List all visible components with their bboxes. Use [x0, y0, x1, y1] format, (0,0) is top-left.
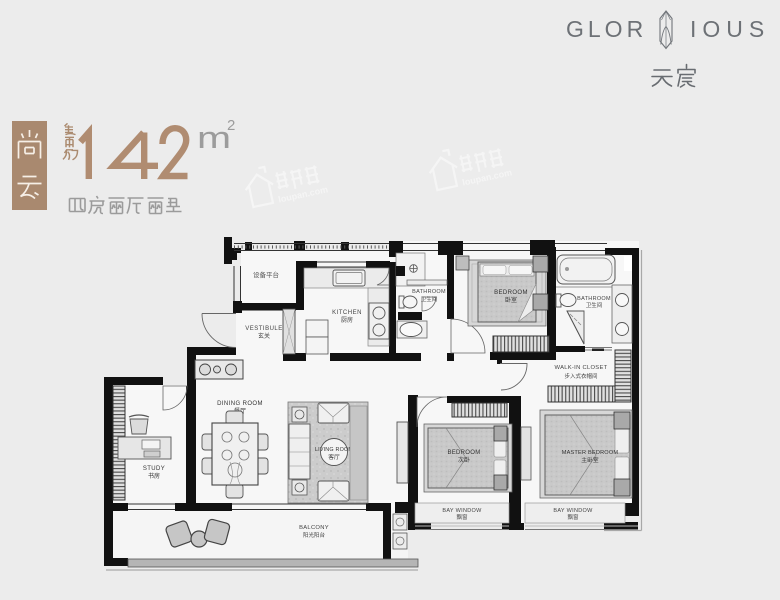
svg-text:KITCHEN: KITCHEN — [332, 310, 362, 316]
svg-text:步入式衣帽间: 步入式衣帽间 — [564, 372, 597, 380]
svg-text:卫生间: 卫生间 — [586, 301, 603, 309]
svg-text:书房: 书房 — [148, 472, 160, 480]
svg-text:厨房: 厨房 — [341, 316, 353, 324]
svg-text:IOUS: IOUS — [690, 16, 770, 42]
svg-text:BATHROOM: BATHROOM — [412, 289, 446, 295]
svg-text:飘窗: 飘窗 — [456, 513, 468, 521]
svg-text:客厅: 客厅 — [328, 453, 340, 461]
svg-text:VESTIBULE: VESTIBULE — [245, 326, 283, 332]
svg-text:BAY WINDOW: BAY WINDOW — [442, 508, 482, 514]
svg-text:GLOR: GLOR — [566, 16, 647, 42]
svg-text:BATHROOM: BATHROOM — [577, 296, 611, 302]
svg-text:m: m — [197, 120, 231, 155]
svg-text:卧室: 卧室 — [505, 296, 517, 304]
svg-text:BEDROOM: BEDROOM — [494, 290, 528, 296]
svg-text:2: 2 — [227, 117, 235, 134]
svg-text:飘窗: 飘窗 — [567, 513, 579, 521]
svg-text:WALK-IN CLOSET: WALK-IN CLOSET — [555, 365, 608, 371]
svg-text:BAY WINDOW: BAY WINDOW — [553, 508, 593, 514]
svg-text:LIVING ROOM: LIVING ROOM — [315, 447, 353, 453]
svg-text:设备平台: 设备平台 — [253, 270, 279, 279]
svg-text:玄关: 玄关 — [258, 332, 270, 340]
svg-text:BALCONY: BALCONY — [299, 525, 329, 531]
svg-text:主卧室: 主卧室 — [581, 456, 599, 464]
svg-text:DINING ROOM: DINING ROOM — [217, 401, 263, 407]
svg-text:BEDROOM: BEDROOM — [447, 450, 480, 456]
svg-text:次卧: 次卧 — [458, 456, 470, 464]
svg-text:阳光阳台: 阳光阳台 — [303, 531, 326, 539]
svg-text:STUDY: STUDY — [143, 466, 165, 472]
svg-text:MASTER BEDROOM: MASTER BEDROOM — [562, 450, 619, 456]
